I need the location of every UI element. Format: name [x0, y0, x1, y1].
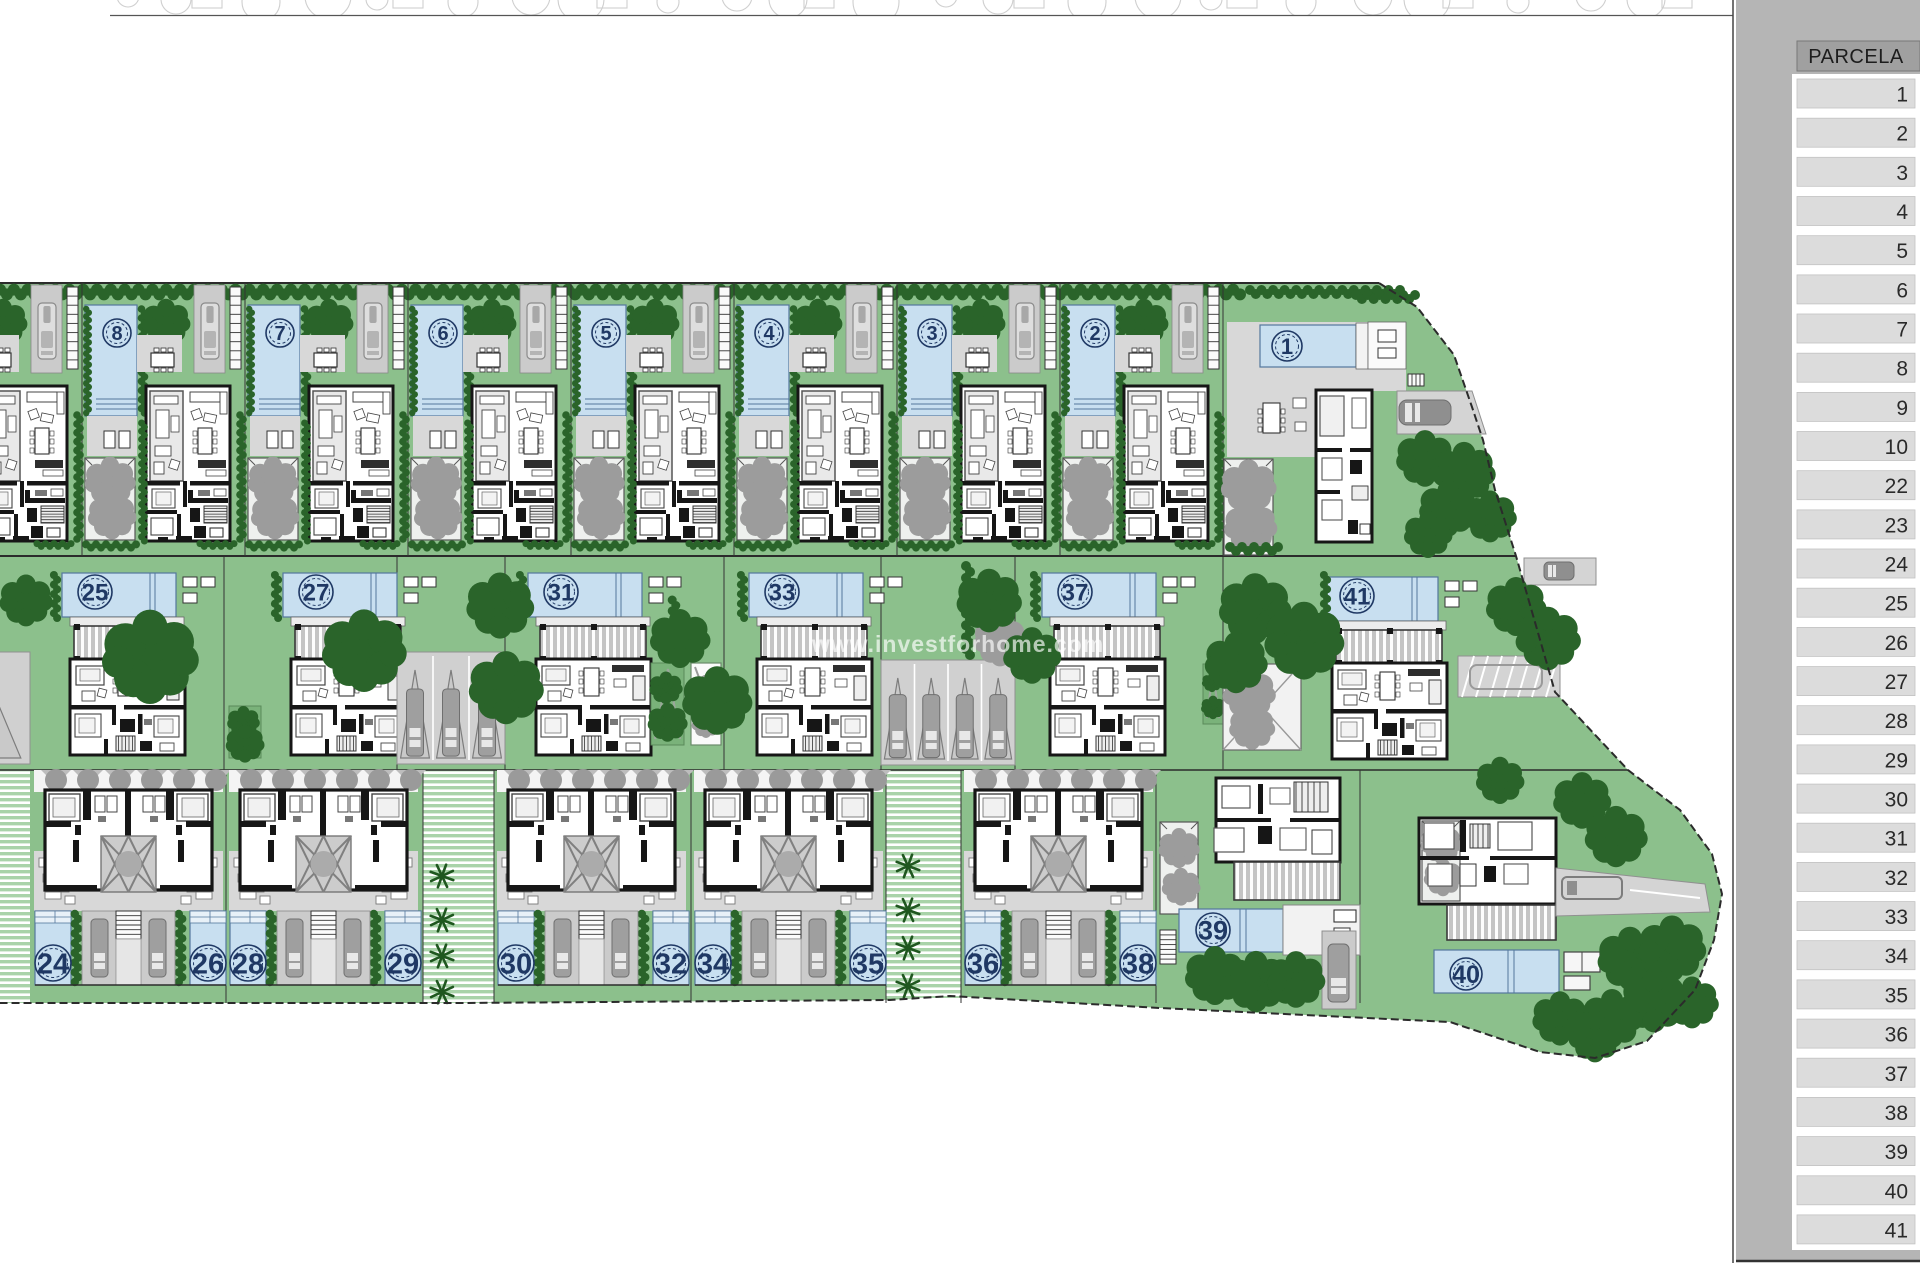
svg-text:32: 32 [655, 948, 687, 980]
svg-text:9: 9 [1896, 397, 1908, 420]
svg-text:25: 25 [82, 580, 109, 607]
svg-text:24: 24 [1885, 554, 1909, 577]
svg-text:26: 26 [1885, 632, 1908, 655]
svg-text:10: 10 [1885, 436, 1908, 459]
svg-text:28: 28 [232, 948, 264, 980]
svg-text:34: 34 [1885, 945, 1909, 968]
svg-text:29: 29 [387, 948, 419, 980]
svg-text:36: 36 [967, 948, 999, 980]
svg-text:6: 6 [1896, 279, 1908, 302]
svg-text:www.investforhome.com: www.investforhome.com [811, 631, 1104, 657]
svg-text:38: 38 [1122, 948, 1154, 980]
svg-text:4: 4 [1896, 201, 1908, 224]
svg-text:38: 38 [1885, 1102, 1908, 1125]
svg-text:37: 37 [1885, 1063, 1908, 1086]
svg-text:36: 36 [1885, 1024, 1908, 1047]
svg-text:PARCELA: PARCELA [1808, 46, 1904, 68]
svg-text:31: 31 [1885, 828, 1908, 851]
svg-text:31: 31 [548, 580, 575, 607]
svg-text:2: 2 [1896, 123, 1908, 146]
svg-text:35: 35 [1885, 984, 1908, 1007]
svg-text:28: 28 [1885, 710, 1908, 733]
svg-text:8: 8 [1896, 358, 1908, 381]
svg-text:32: 32 [1885, 867, 1908, 890]
svg-text:2: 2 [1089, 323, 1100, 345]
svg-text:3: 3 [1896, 162, 1908, 185]
svg-text:33: 33 [1885, 906, 1908, 929]
svg-text:4: 4 [763, 323, 775, 345]
svg-text:7: 7 [274, 323, 285, 345]
svg-text:24: 24 [37, 948, 69, 980]
svg-text:27: 27 [303, 580, 330, 607]
svg-text:27: 27 [1885, 671, 1908, 694]
svg-text:22: 22 [1885, 475, 1908, 498]
svg-text:7: 7 [1896, 319, 1908, 342]
svg-text:30: 30 [500, 948, 532, 980]
svg-text:26: 26 [192, 948, 224, 980]
svg-text:30: 30 [1885, 789, 1908, 812]
svg-text:34: 34 [697, 948, 729, 980]
svg-text:6: 6 [437, 323, 448, 345]
svg-text:41: 41 [1885, 1219, 1908, 1242]
svg-text:1: 1 [1896, 84, 1908, 107]
svg-text:40: 40 [1452, 961, 1480, 989]
svg-text:29: 29 [1885, 749, 1908, 772]
svg-text:5: 5 [600, 323, 611, 345]
svg-text:25: 25 [1885, 593, 1908, 616]
svg-text:33: 33 [769, 580, 796, 607]
svg-text:1: 1 [1281, 334, 1293, 359]
svg-text:5: 5 [1896, 240, 1908, 263]
svg-text:3: 3 [926, 323, 937, 345]
svg-text:8: 8 [111, 323, 122, 345]
svg-text:35: 35 [852, 948, 884, 980]
svg-text:37: 37 [1062, 580, 1089, 607]
svg-text:41: 41 [1344, 584, 1371, 611]
svg-text:39: 39 [1198, 916, 1228, 946]
svg-text:40: 40 [1885, 1180, 1908, 1203]
svg-text:39: 39 [1885, 1141, 1908, 1164]
svg-text:23: 23 [1885, 514, 1908, 537]
